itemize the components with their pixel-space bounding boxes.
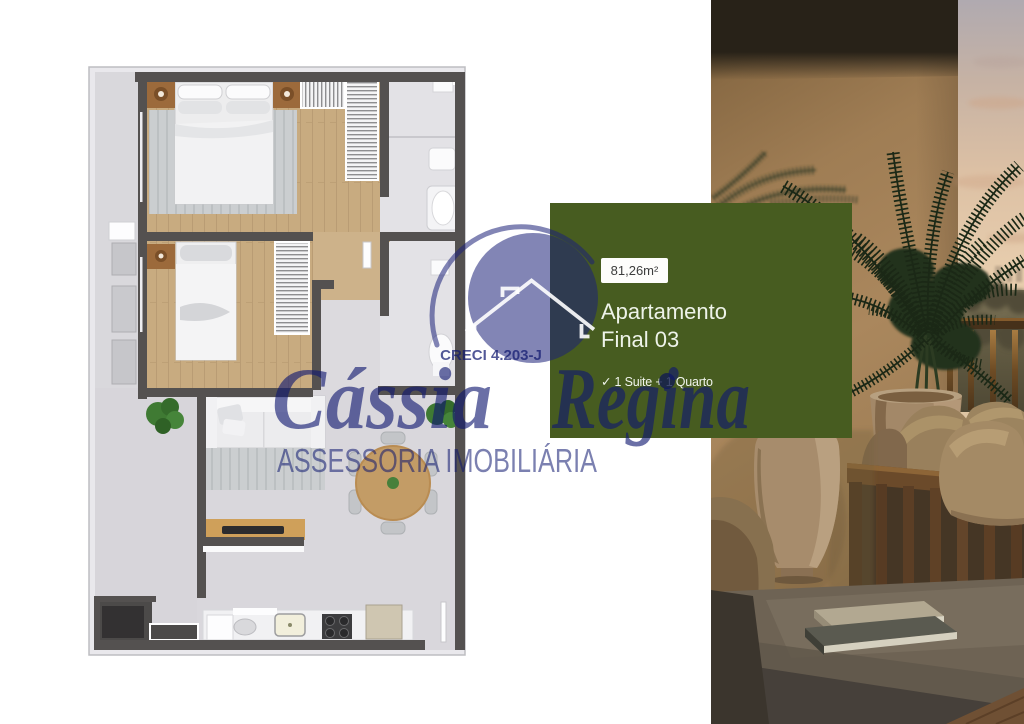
svg-text:ASSESSORIA IMOBILIÁRIA: ASSESSORIA IMOBILIÁRIA	[277, 442, 597, 479]
svg-text:Regina: Regina	[551, 351, 750, 448]
svg-text:Cássia: Cássia	[272, 351, 492, 448]
